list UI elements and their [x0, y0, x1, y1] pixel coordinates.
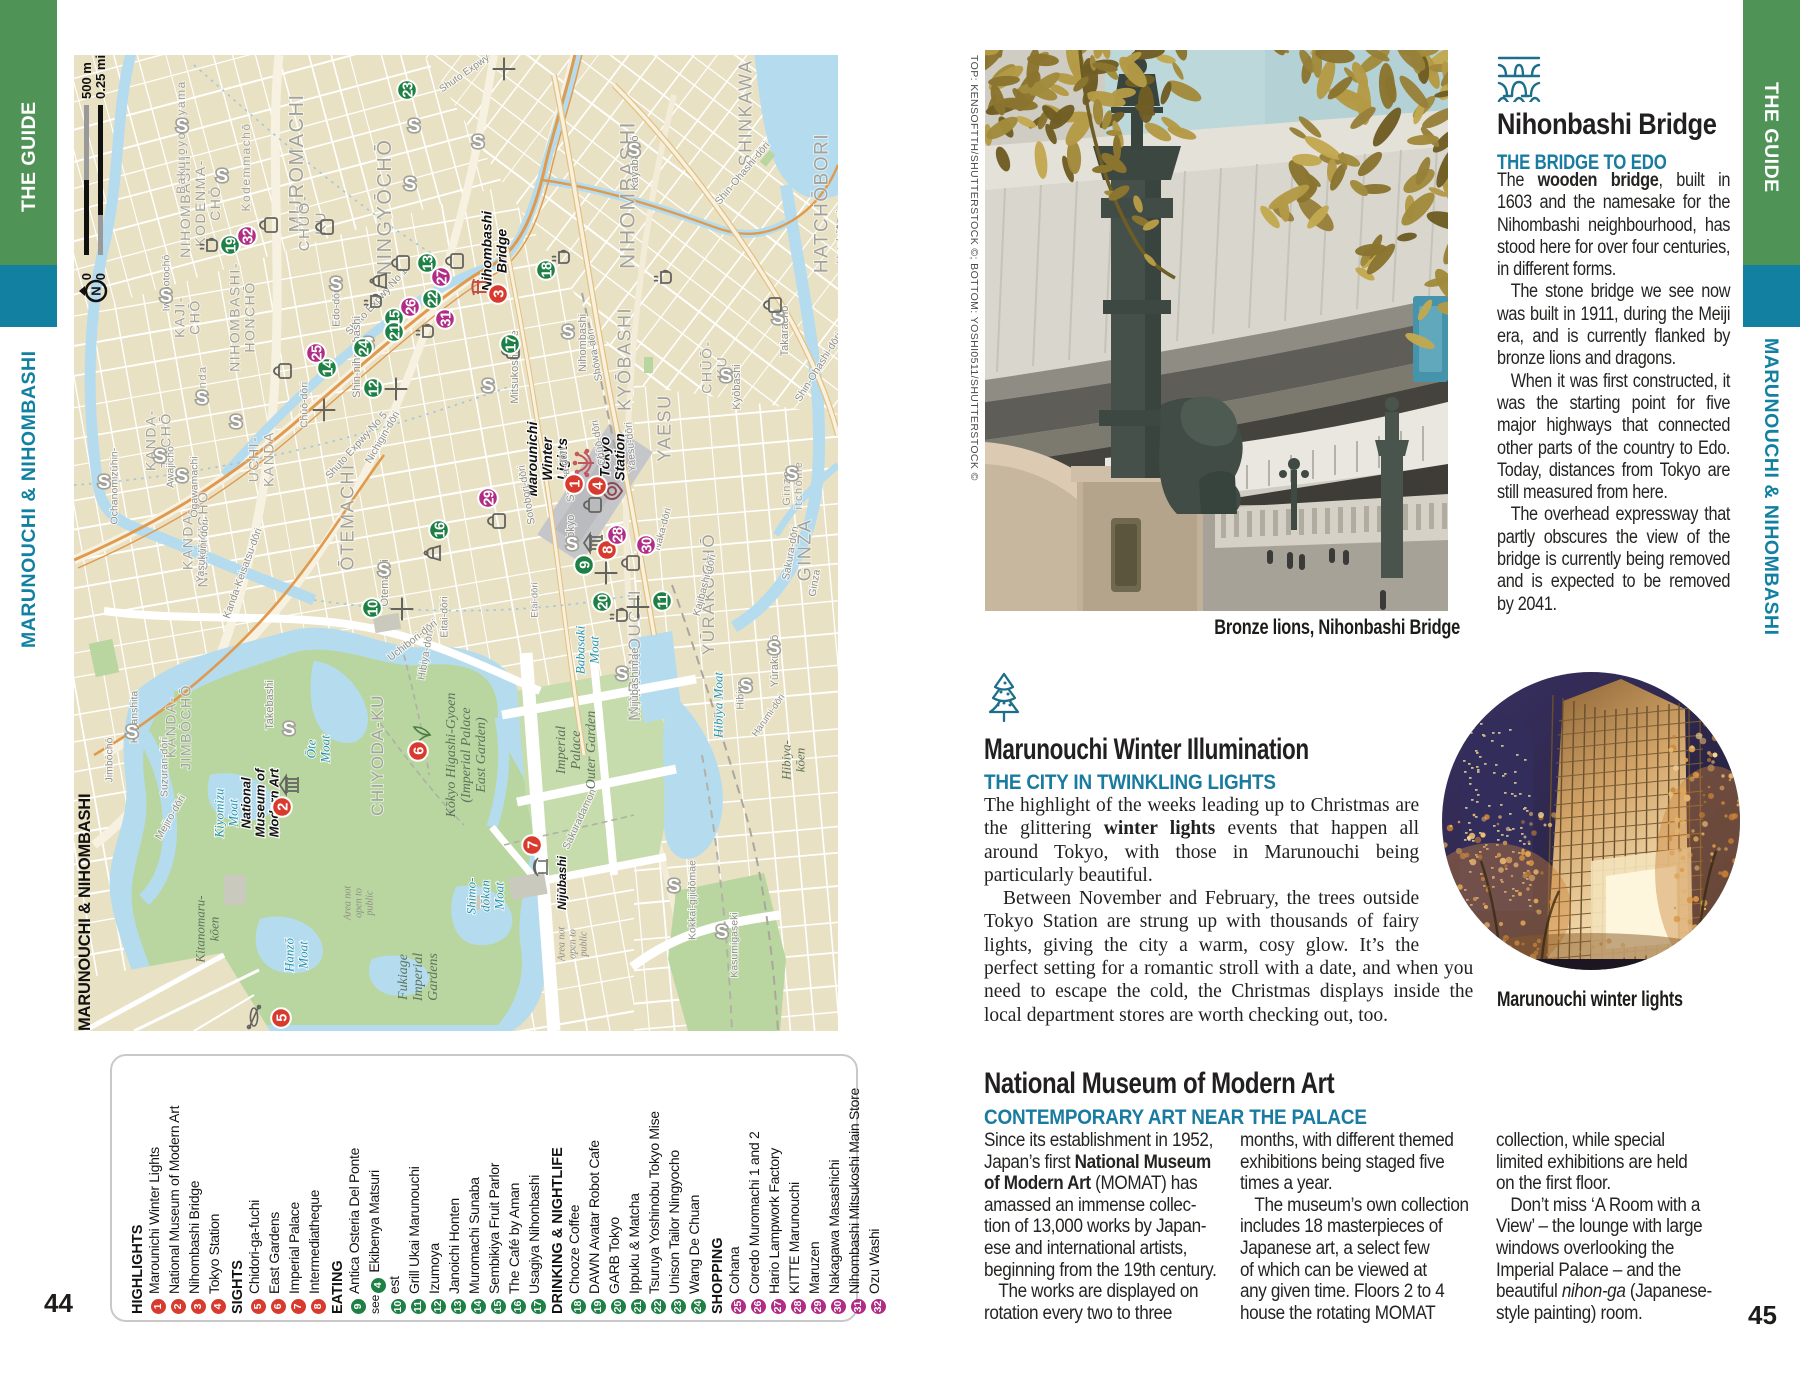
svg-text:Chūō-dōri: Chūō-dōri: [299, 382, 311, 428]
svg-text:29: 29: [481, 490, 497, 506]
svg-text:7: 7: [525, 841, 541, 849]
svg-text:Outer Garden: Outer Garden: [584, 711, 599, 789]
svg-text:open to: open to: [568, 929, 579, 959]
svg-text:Imperial: Imperial: [554, 726, 569, 775]
svg-text:Area not: Area not: [557, 927, 568, 963]
svg-text:KODENMA-: KODENMA-: [192, 159, 208, 246]
svg-text:16: 16: [432, 522, 448, 538]
svg-text:Hibiya Moat: Hibiya Moat: [711, 672, 726, 739]
svg-text:HATCHŌBORI: HATCHŌBORI: [812, 133, 833, 273]
svg-text:28: 28: [610, 527, 626, 543]
svg-text:Kitanomaru-: Kitanomaru-: [193, 895, 208, 963]
svg-text:kōen: kōen: [207, 917, 222, 942]
svg-text:Museum of: Museum of: [253, 767, 268, 837]
svg-text:9: 9: [577, 561, 593, 569]
svg-text:1: 1: [567, 480, 583, 488]
svg-text:CHIYODA-KU: CHIYODA-KU: [368, 694, 387, 816]
svg-text:0.25 miles: 0.25 miles: [93, 55, 108, 99]
svg-text:4: 4: [590, 482, 606, 490]
svg-text:UCHI-: UCHI-: [245, 436, 261, 482]
svg-text:27: 27: [434, 269, 450, 285]
svg-text:Nihombashi: Nihombashi: [478, 210, 494, 291]
svg-text:(Imperial Palace: (Imperial Palace: [459, 707, 474, 802]
svg-text:KAJI-: KAJI-: [171, 296, 187, 338]
svg-text:Hibiya-: Hibiya-: [779, 740, 794, 781]
svg-text:Takebashi: Takebashi: [264, 680, 276, 730]
svg-text:Moat: Moat: [296, 941, 311, 970]
svg-text:25: 25: [309, 345, 325, 361]
svg-text:18: 18: [539, 262, 555, 278]
svg-text:6: 6: [411, 747, 427, 755]
svg-text:14: 14: [320, 360, 336, 376]
svg-text:public: public: [364, 890, 375, 917]
svg-text:kōen: kōen: [793, 748, 808, 773]
svg-text:East Garden): East Garden): [474, 717, 489, 794]
svg-text:17: 17: [503, 336, 519, 352]
svg-text:8: 8: [600, 546, 616, 554]
svg-text:Bridge: Bridge: [494, 229, 510, 274]
svg-text:5: 5: [274, 1014, 290, 1022]
svg-text:CHŪŌ-: CHŪŌ-: [698, 340, 714, 393]
svg-text:YAESU: YAESU: [654, 394, 674, 461]
svg-text:Fukiage: Fukiage: [396, 954, 411, 1001]
svg-text:31: 31: [438, 311, 454, 327]
svg-text:Hanzō: Hanzō: [282, 938, 297, 973]
svg-text:ŌTEMACHI: ŌTEMACHI: [337, 463, 357, 570]
svg-text:Moat: Moat: [587, 636, 602, 665]
svg-text:Moat: Moat: [492, 882, 507, 911]
svg-text:SHINKAWA: SHINKAWA: [735, 60, 755, 167]
svg-text:Kasumigaseki: Kasumigaseki: [729, 912, 741, 977]
svg-text:Eitai-dōri: Eitai-dōri: [439, 596, 451, 637]
svg-text:Nijūbashi: Nijūbashi: [555, 855, 569, 910]
svg-text:Imperial: Imperial: [411, 953, 426, 1002]
svg-text:CHŪŌ-: CHŪŌ-: [296, 195, 313, 252]
svg-text:21: 21: [387, 324, 403, 340]
svg-text:Ogawamachi: Ogawamachi: [189, 456, 201, 517]
svg-text:Bakuroyokoyama: Bakuroyokoyama: [174, 80, 188, 194]
svg-text:11: 11: [655, 593, 671, 608]
svg-text:13: 13: [420, 255, 436, 271]
svg-text:0: 0: [93, 273, 108, 280]
svg-text:32: 32: [240, 228, 256, 244]
svg-text:Gardens: Gardens: [426, 953, 441, 1001]
svg-text:MARUNOUCHI & NIHOMBASHI: MARUNOUCHI & NIHOMBASHI: [76, 794, 94, 1031]
svg-text:22: 22: [425, 291, 441, 307]
svg-text:Etai-dōri: Etai-dōri: [529, 582, 540, 617]
svg-text:Nijūbashimae: Nijūbashimae: [629, 648, 641, 715]
svg-text:12: 12: [366, 380, 382, 396]
svg-text:National: National: [239, 777, 254, 829]
svg-text:2: 2: [275, 803, 291, 811]
svg-text:20: 20: [595, 594, 611, 610]
svg-text:Kōkyo Higashi-Gyoen: Kōkyo Higashi-Gyoen: [444, 693, 459, 819]
svg-text:NIHOMBASHI-: NIHOMBASHI-: [226, 262, 242, 372]
svg-text:26: 26: [403, 299, 419, 315]
svg-text:Kokkai-gijidōmae: Kokkai-gijidōmae: [687, 860, 699, 940]
svg-text:3: 3: [491, 290, 507, 298]
svg-text:23: 23: [400, 82, 416, 98]
svg-text:Ochanomizu: Ochanomizu: [109, 465, 121, 524]
svg-text:dōkan: dōkan: [478, 880, 493, 912]
svg-text:KYŌBASHI: KYŌBASHI: [614, 307, 634, 411]
svg-text:Ōte: Ōte: [304, 739, 319, 758]
svg-text:Shimo-: Shimo-: [464, 878, 479, 915]
svg-text:Palace: Palace: [569, 731, 584, 771]
svg-text:CHŌ: CHŌ: [187, 299, 203, 335]
svg-text:NINGYŌCHŌ: NINGYŌCHŌ: [373, 139, 396, 276]
svg-text:public: public: [578, 931, 589, 958]
svg-text:Moat: Moat: [318, 735, 333, 764]
svg-text:KANDA: KANDA: [261, 431, 277, 487]
svg-text:Kiyomizu: Kiyomizu: [212, 788, 227, 839]
svg-text:0: 0: [79, 273, 94, 280]
svg-text:10: 10: [365, 600, 381, 616]
svg-text:Kodemmachō: Kodemmachō: [239, 122, 253, 211]
svg-text:Winter: Winter: [539, 436, 555, 481]
svg-text:N: N: [89, 286, 104, 295]
svg-text:Jimbōchō: Jimbōchō: [104, 737, 116, 782]
svg-text:Babasaki: Babasaki: [573, 625, 588, 674]
svg-text:Edo-dōri: Edo-dōri: [331, 287, 343, 327]
svg-text:CHŌ: CHŌ: [207, 185, 223, 221]
svg-text:500 m: 500 m: [79, 62, 94, 99]
svg-text:Area not: Area not: [343, 886, 354, 922]
svg-text:30: 30: [639, 537, 655, 553]
svg-text:Kyōbashi: Kyōbashi: [731, 364, 743, 409]
svg-text:24: 24: [356, 340, 372, 356]
svg-text:Suzuran-dōri: Suzuran-dōri: [159, 737, 171, 797]
svg-text:open to: open to: [354, 888, 365, 918]
svg-text:JIMBŌCHŌ: JIMBŌCHŌ: [178, 684, 194, 770]
svg-text:HONCHŌ: HONCHŌ: [242, 281, 258, 352]
svg-text:Nihombashi: Nihombashi: [577, 314, 589, 372]
